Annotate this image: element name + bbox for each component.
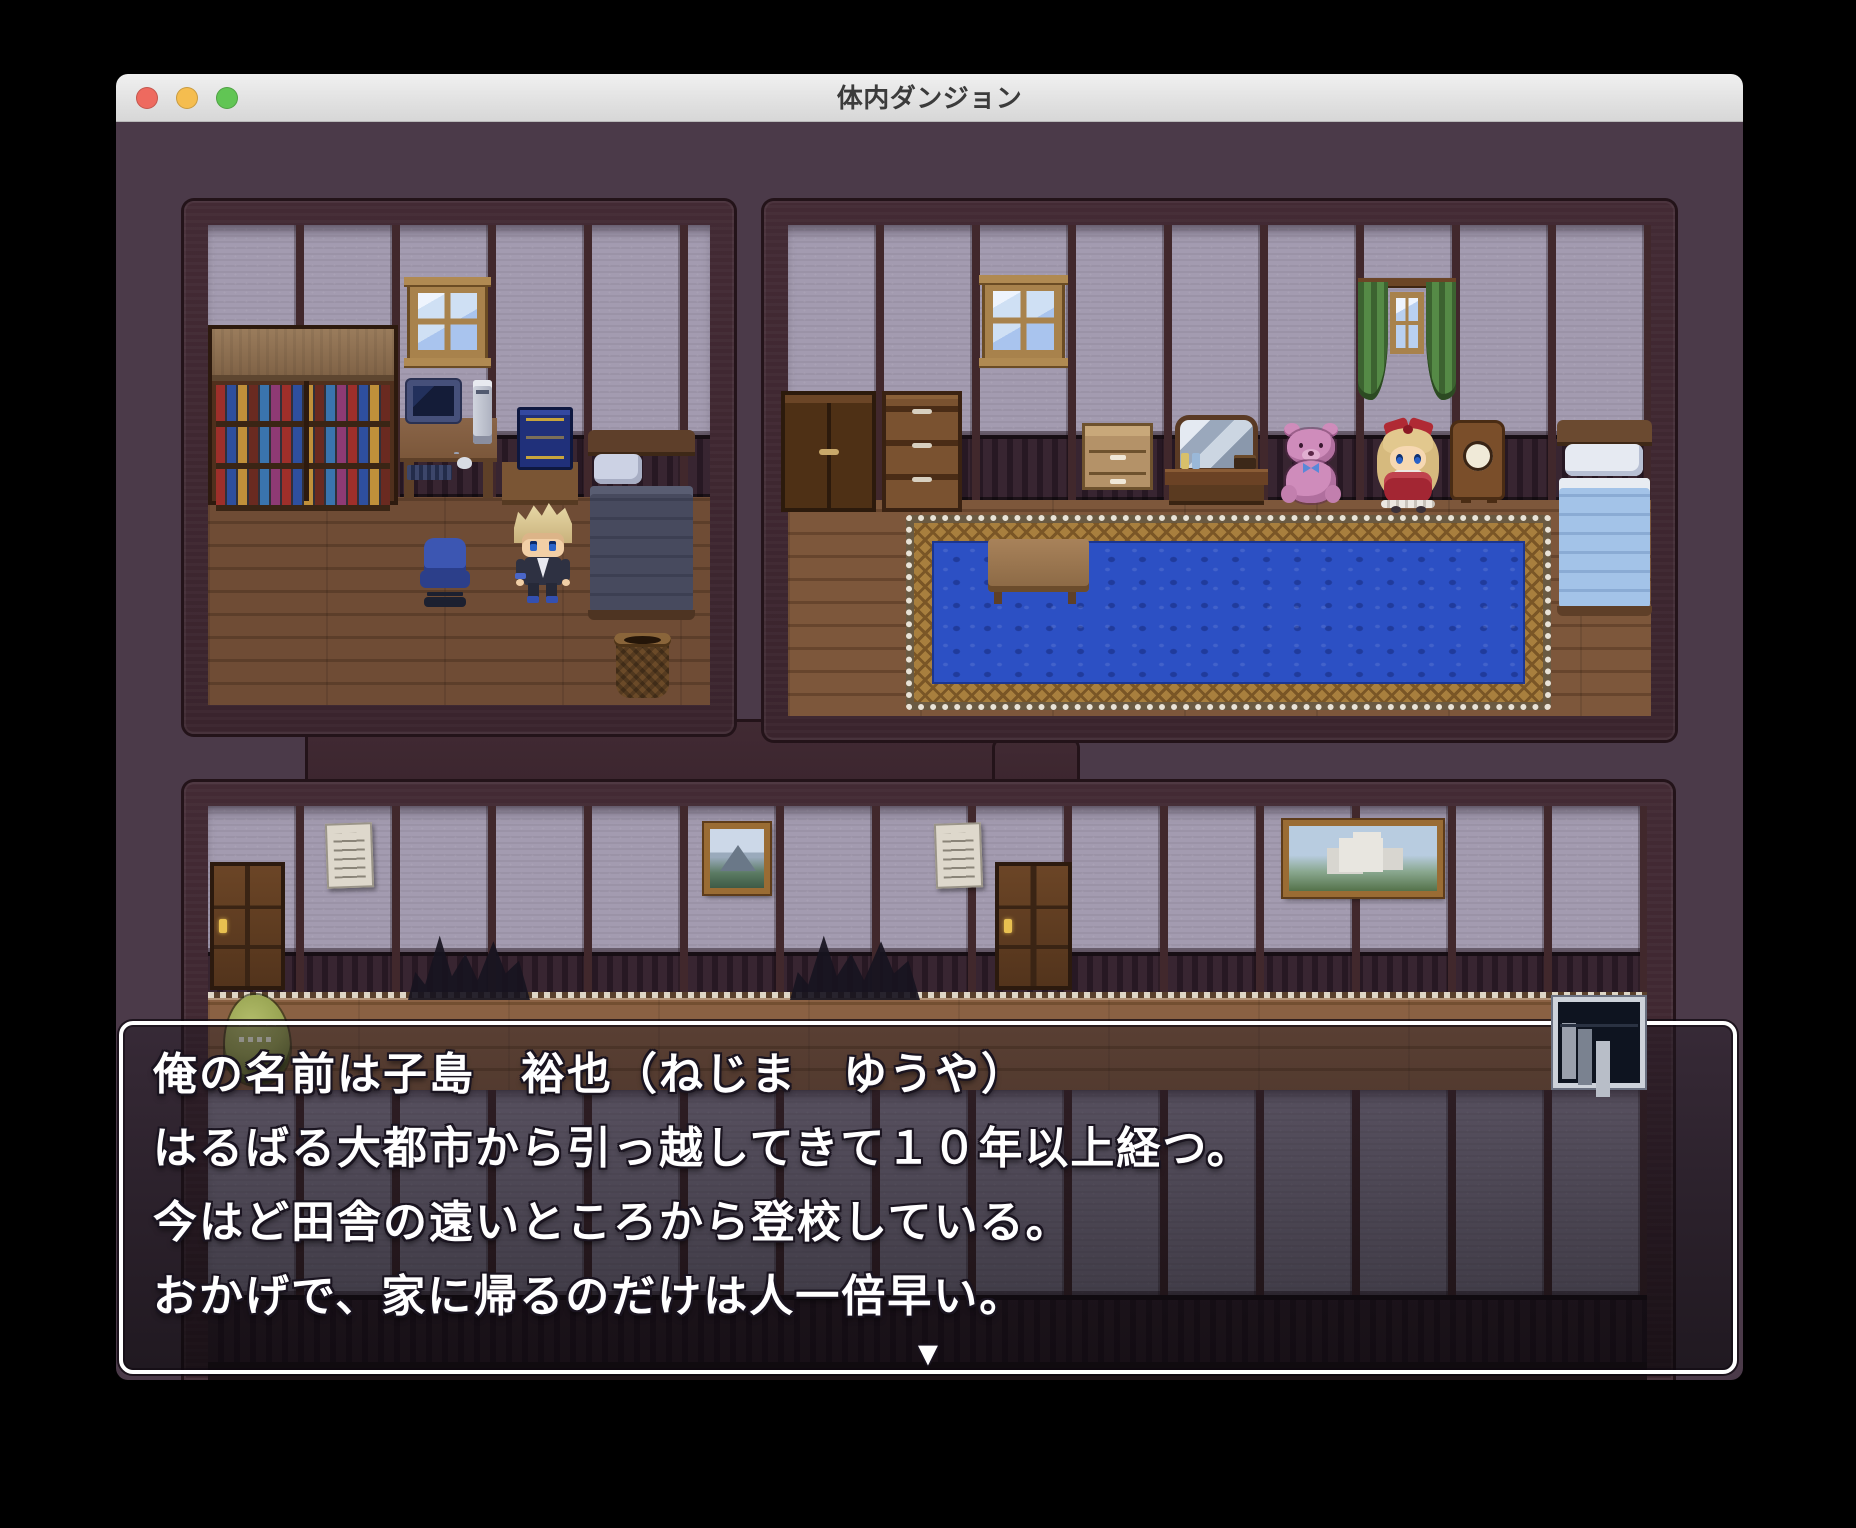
castle-painting: [1283, 820, 1443, 897]
keyboard: [407, 465, 452, 480]
green-curtain-right: [1426, 282, 1456, 400]
hero-leg: [528, 583, 539, 597]
curtained-window: [1358, 278, 1456, 420]
pink-teddy-bear: [1282, 423, 1340, 512]
perfume-bottle: [1192, 453, 1200, 469]
paper-poster-right: [934, 822, 983, 889]
woven-basket: [616, 633, 669, 698]
hero-shoe: [546, 596, 558, 603]
doll-lace: [1381, 500, 1435, 508]
nightstand: [1082, 423, 1153, 490]
hero-eye: [549, 541, 556, 551]
perfume-bottle: [1181, 453, 1189, 469]
hero-face: [522, 533, 564, 557]
book-row: [216, 427, 390, 463]
doll-eye: [1396, 454, 1403, 464]
wooden-stool: [988, 539, 1089, 592]
hero-hand: [562, 579, 570, 586]
bed-footboard: [1557, 606, 1652, 616]
mountain-painting: [704, 823, 770, 894]
desktop-background: 体内ダンジョン: [0, 0, 1856, 1528]
chair-back: [424, 538, 466, 574]
crt-monitor: [407, 380, 460, 422]
game-window: 体内ダンジョン: [116, 74, 1743, 1380]
left-room-bed: [588, 430, 695, 620]
doll-red-dress: [1377, 420, 1440, 513]
teddy-eye: [1319, 443, 1323, 448]
bed-blanket: [590, 486, 693, 612]
continue-arrow-icon[interactable]: ▼: [911, 1335, 945, 1374]
bed-pillow: [594, 454, 642, 484]
mouse: [457, 457, 472, 469]
hero-arm: [561, 559, 570, 581]
vanity-mirror: [1165, 415, 1268, 505]
teddy-eye: [1299, 443, 1303, 448]
dialog-line: おかげで、家に帰るのだけは人一倍早い。: [153, 1260, 1709, 1334]
book-row: [216, 469, 390, 505]
doll-shoe: [1416, 506, 1426, 513]
hero-shoe: [527, 596, 539, 603]
bed-headboard: [588, 430, 695, 456]
chair-base: [424, 597, 466, 607]
doll-shoe: [1391, 506, 1401, 513]
mantel-clock: [1450, 420, 1505, 500]
chair-seat: [420, 570, 470, 588]
dialog-box[interactable]: 俺の名前は子島 裕也（ねじま ゆうや） はるばる大都市から引っ越してきて１０年以…: [119, 1021, 1737, 1374]
vanity-top: [1165, 469, 1268, 485]
bed-blanket: [1559, 478, 1650, 608]
window-title: 体内ダンジョン: [116, 74, 1743, 122]
dialog-line: 俺の名前は子島 裕也（ねじま ゆうや）: [153, 1038, 1709, 1112]
window-titlebar[interactable]: 体内ダンジョン: [116, 74, 1743, 122]
bookshelf-divider: [304, 381, 309, 501]
drawer-handle: [912, 409, 932, 414]
teddy-paw: [1281, 485, 1297, 503]
hero-eye: [530, 541, 537, 551]
hallway-door-left: [210, 862, 285, 990]
office-chair: [420, 538, 470, 607]
teddy-nose: [1308, 451, 1314, 456]
desk-leg: [483, 462, 493, 498]
wardrobe: [781, 391, 876, 512]
right-room-window: [985, 283, 1062, 358]
right-room-bed: [1557, 420, 1652, 616]
drawer-handle: [912, 477, 932, 482]
hallway-door-right: [995, 862, 1072, 990]
paper-poster-left: [325, 822, 374, 889]
left-room-window: [410, 285, 485, 358]
bookshelf-top: [212, 329, 394, 381]
pc-tower: [473, 380, 492, 444]
bed-footboard: [588, 610, 695, 620]
game-viewport[interactable]: 俺の名前は子島 裕也（ねじま ゆうや） はるばる大都市から引っ越してきて１０年以…: [116, 122, 1743, 1380]
bed-headboard: [1557, 420, 1652, 446]
monitor-screen: [413, 386, 454, 416]
window-glass: [1390, 292, 1424, 354]
dialog-line: 今はど田舎の遠いところから登校している。: [153, 1186, 1709, 1260]
doll-bow-knot: [1403, 425, 1413, 434]
book-row: [216, 385, 390, 421]
doll-eye: [1414, 454, 1421, 464]
dialog-line: はるばる大都市から引っ越してきて１０年以上経つ。: [153, 1112, 1709, 1186]
teddy-paw: [1325, 485, 1341, 503]
white-framed-bookshelf: [1553, 997, 1645, 1088]
vanity-drawers: [1169, 485, 1264, 505]
navy-grimoire: [517, 407, 573, 470]
jewelry-box: [1234, 455, 1256, 469]
bed-pillow: [1565, 444, 1643, 476]
drawer-handle: [912, 443, 932, 448]
protagonist-sprite: [512, 503, 574, 603]
hero-leg: [546, 583, 557, 597]
hero-hand: [516, 579, 524, 586]
chest-of-drawers: [882, 391, 962, 512]
green-curtain-left: [1358, 282, 1388, 400]
bookshelf: [208, 325, 398, 505]
